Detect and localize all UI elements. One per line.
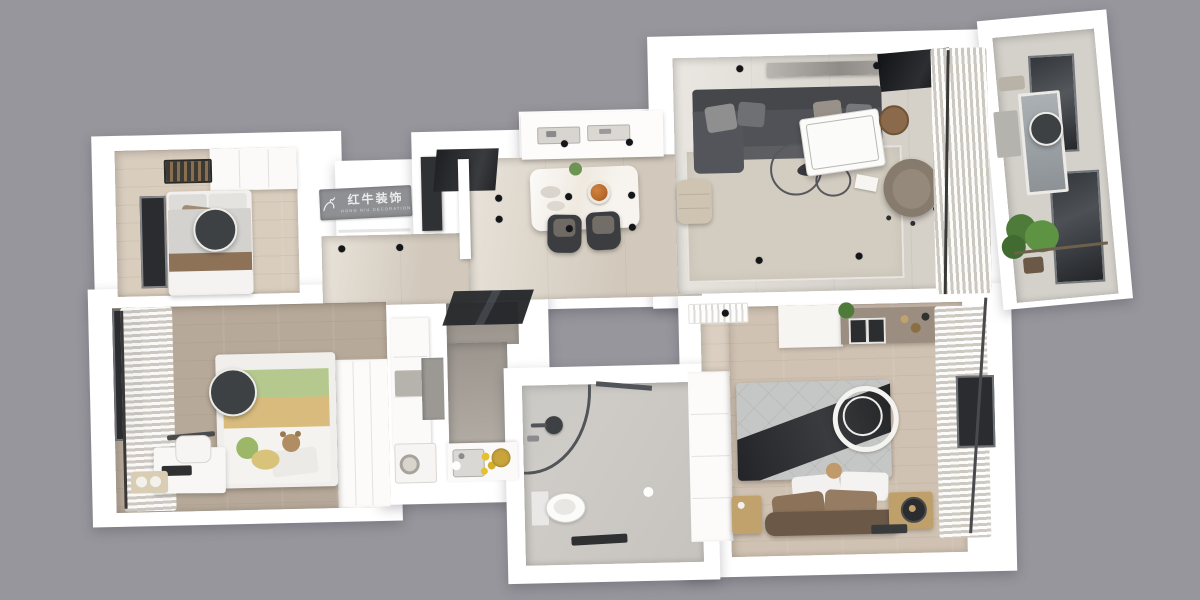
ceiling-spotlight	[396, 244, 403, 251]
ceiling-spotlight	[561, 140, 568, 147]
ceiling-spotlight	[496, 216, 503, 223]
ceiling-spotlight	[855, 253, 862, 260]
ceiling-spotlight	[626, 139, 633, 146]
round-ceiling-lamp	[1029, 111, 1064, 146]
ceiling-spotlight	[566, 225, 573, 232]
ceiling-spotlight	[736, 65, 743, 72]
ceiling-spotlight	[722, 310, 729, 317]
apartment-floorplan: 红牛装饰 HONG NIU DECORATION	[0, 0, 1200, 600]
ceiling-spotlight	[338, 245, 345, 252]
ceiling-spotlight	[873, 62, 880, 69]
ceiling-spotlight	[495, 195, 502, 202]
floorplan-render: 红牛装饰 HONG NIU DECORATION	[0, 0, 1200, 600]
round-ceiling-lamp	[208, 368, 257, 417]
ceiling-spotlight	[565, 193, 572, 200]
spotlight-layer	[0, 0, 1200, 600]
round-ceiling-lamp	[193, 207, 238, 252]
ceiling-spotlight	[629, 224, 636, 231]
ceiling-spotlight	[628, 192, 635, 199]
ceiling-spotlight	[756, 257, 763, 264]
